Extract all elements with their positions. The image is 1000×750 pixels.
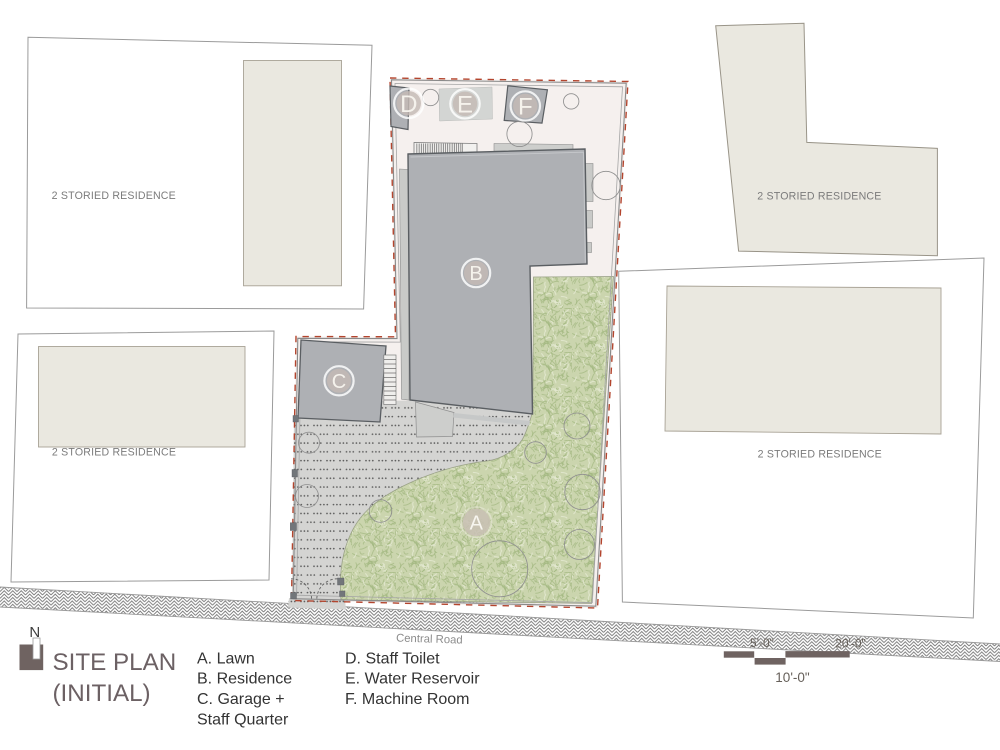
svg-text:B. Residence: B. Residence	[197, 671, 292, 688]
svg-text:D: D	[400, 91, 417, 118]
svg-text:A. Lawn: A. Lawn	[197, 651, 255, 668]
svg-text:N: N	[29, 624, 40, 641]
svg-text:SITE PLAN: SITE PLAN	[53, 649, 177, 676]
svg-text:(INITIAL): (INITIAL)	[53, 680, 151, 707]
svg-text:F. Machine Room: F. Machine Room	[345, 691, 470, 708]
svg-text:5'-0": 5'-0"	[750, 636, 774, 650]
svg-text:2 STORIED RESIDENCE: 2 STORIED RESIDENCE	[52, 190, 176, 202]
svg-text:Central Road: Central Road	[396, 633, 463, 647]
svg-text:D. Staff Toilet: D. Staff Toilet	[345, 651, 440, 668]
svg-text:10'-0": 10'-0"	[775, 670, 810, 685]
svg-text:Staff Quarter: Staff Quarter	[197, 712, 289, 729]
svg-text:B: B	[469, 263, 482, 285]
svg-text:A: A	[470, 512, 484, 534]
svg-text:E: E	[457, 91, 473, 118]
svg-text:2 STORIED RESIDENCE: 2 STORIED RESIDENCE	[758, 449, 882, 461]
svg-text:20'-0": 20'-0"	[835, 637, 866, 651]
svg-text:F: F	[518, 94, 533, 121]
svg-text:C: C	[332, 371, 346, 393]
svg-text:E. Water Reservoir: E. Water Reservoir	[345, 671, 480, 688]
svg-text:2 STORIED RESIDENCE: 2 STORIED RESIDENCE	[52, 446, 176, 458]
svg-text:C. Garage +: C. Garage +	[197, 691, 285, 708]
svg-text:2 STORIED RESIDENCE: 2 STORIED RESIDENCE	[757, 190, 881, 202]
